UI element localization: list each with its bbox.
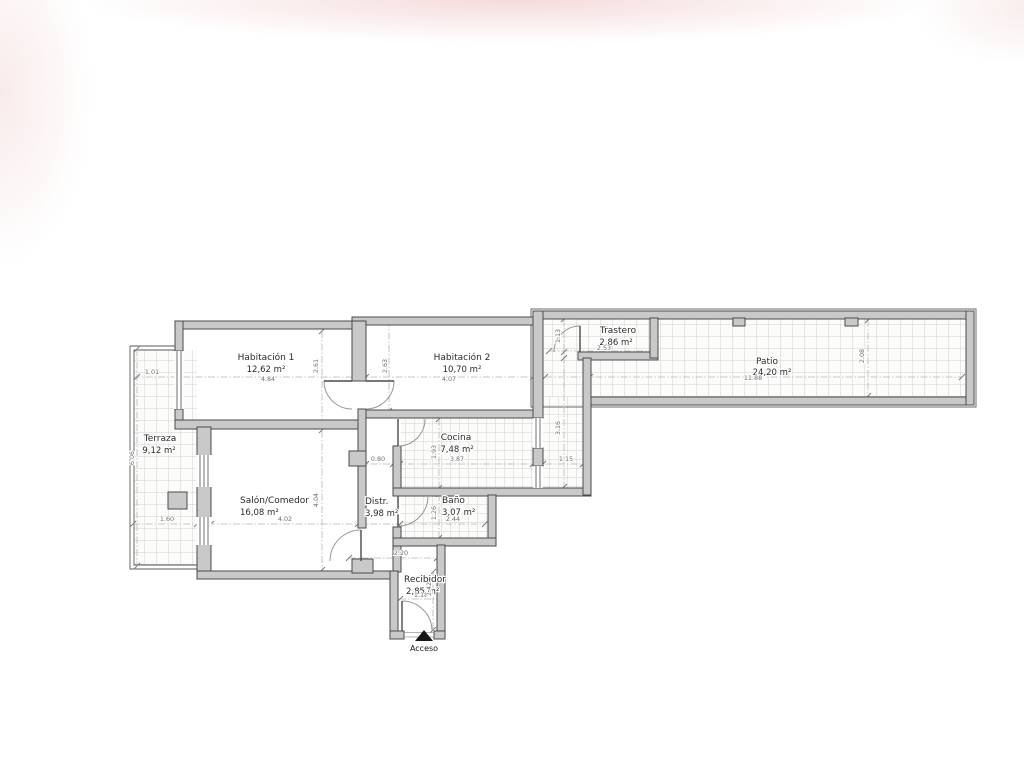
floor-plan: Habitación 1 12,62 m² Habitación 2 10,70… bbox=[0, 0, 1024, 768]
salon-name: Salón/Comedor bbox=[240, 495, 309, 506]
dim-patio-width: 11.88 bbox=[744, 374, 762, 382]
acceso-label: Acceso bbox=[410, 644, 438, 653]
dim-salon-height: 4.04 bbox=[312, 493, 320, 507]
salon-area: 16,08 m² bbox=[240, 508, 279, 518]
wall-recibidor-bottom-left bbox=[390, 631, 404, 639]
dim-bano-width: 2.44 bbox=[446, 515, 460, 523]
distr-name: Distr. bbox=[365, 497, 388, 507]
terraza-name: Terraza bbox=[143, 434, 177, 444]
wall-hab2-right bbox=[533, 311, 543, 418]
room-label-distribuidor: Distr. 3,98 m² bbox=[365, 497, 398, 519]
room-label-habitacion-1: Habitación 1 12,62 m² bbox=[238, 352, 295, 375]
dim-bano-height: 1.26 bbox=[430, 506, 438, 520]
recibidor-door bbox=[402, 601, 432, 631]
distr-area: 3,98 m² bbox=[365, 509, 398, 519]
patio-top-stub-2 bbox=[845, 318, 858, 326]
dim-cocina-width: 3.87 bbox=[450, 455, 464, 463]
cocina-window-1 bbox=[534, 418, 543, 448]
patio-floor-main bbox=[658, 319, 966, 398]
hab1-window bbox=[175, 351, 184, 409]
entrance-marker bbox=[415, 630, 433, 641]
wall-divider-hab1-hab2 bbox=[352, 321, 366, 381]
habitacion2-area: 10,70 m² bbox=[443, 365, 482, 375]
dim-strip-width: 1.15 bbox=[559, 455, 573, 463]
patio-floor-strip bbox=[543, 397, 583, 489]
wall-patio-bottom bbox=[591, 397, 974, 405]
dim-salon-width: 4.02 bbox=[278, 515, 292, 523]
wall-recibidor-left bbox=[390, 571, 398, 638]
dim-trastero-width: 2.53 bbox=[597, 344, 611, 352]
trastero-name: Trastero bbox=[599, 326, 637, 336]
corridor-pillar bbox=[349, 451, 366, 466]
wall-trastero-right bbox=[650, 318, 658, 358]
terraza-area: 9,12 m² bbox=[142, 446, 175, 456]
cocina-window-2 bbox=[534, 466, 543, 488]
wall-cocina-right-stub bbox=[533, 448, 543, 466]
dim-hab1-width: 4.84 bbox=[261, 375, 275, 383]
terraza-floor bbox=[134, 350, 197, 565]
patio-name: Patio bbox=[756, 357, 779, 367]
salon-door bbox=[330, 530, 361, 561]
dim-terraza-top: 1.01 bbox=[145, 368, 159, 376]
dim-hab2-height: 2.63 bbox=[381, 359, 389, 373]
wall-strip-right bbox=[583, 358, 591, 495]
acceso-arrow-icon bbox=[415, 630, 433, 641]
wall-hab1-top bbox=[175, 321, 365, 329]
dim-hab1-height: 2.61 bbox=[312, 359, 320, 373]
dim-trastero-height: 1.13 bbox=[554, 329, 562, 343]
terraza-pillar bbox=[168, 492, 187, 509]
dim-strip-height: 3.16 bbox=[554, 421, 562, 435]
wall-hab2-top bbox=[352, 317, 541, 325]
wall-corridor-notch bbox=[352, 559, 373, 573]
habitacion1-area: 12,62 m² bbox=[247, 365, 286, 375]
dim-terraza-height: 6.06 bbox=[128, 451, 136, 465]
dim-hab2-width: 4.07 bbox=[442, 375, 456, 383]
dim-recibidor-height: 2.42 bbox=[425, 582, 433, 596]
room-label-habitacion-2: Habitación 2 10,70 m² bbox=[434, 352, 491, 375]
habitacion2-name: Habitación 2 bbox=[434, 352, 491, 363]
wall-hab1-left-upper bbox=[175, 321, 183, 351]
hab2-door bbox=[366, 381, 394, 409]
wall-patio-right bbox=[966, 311, 974, 405]
cocina-area: 7,48 m² bbox=[440, 445, 473, 455]
patio-top-stub-1 bbox=[733, 318, 745, 326]
room-label-salon-comedor: Salón/Comedor 16,08 m² bbox=[240, 495, 309, 518]
dim-terraza-mid: 1.60 bbox=[160, 515, 174, 523]
dim-pasillo-width: 2.20 bbox=[394, 549, 408, 557]
wall-recibidor-bottom-right bbox=[434, 631, 445, 639]
hab1-door bbox=[324, 381, 352, 409]
bano-name: Baño bbox=[442, 496, 465, 506]
cocina-name: Cocina bbox=[441, 433, 471, 443]
wall-hab2-bottom bbox=[358, 410, 541, 418]
wall-patio-top bbox=[533, 311, 974, 319]
dim-distr-width: 0.80 bbox=[371, 455, 385, 463]
dim-patio-height: 2.08 bbox=[858, 349, 866, 363]
wall-salon-left bbox=[197, 427, 211, 572]
dim-cocina-height: 1.93 bbox=[430, 445, 438, 459]
habitacion1-name: Habitación 1 bbox=[238, 352, 295, 363]
